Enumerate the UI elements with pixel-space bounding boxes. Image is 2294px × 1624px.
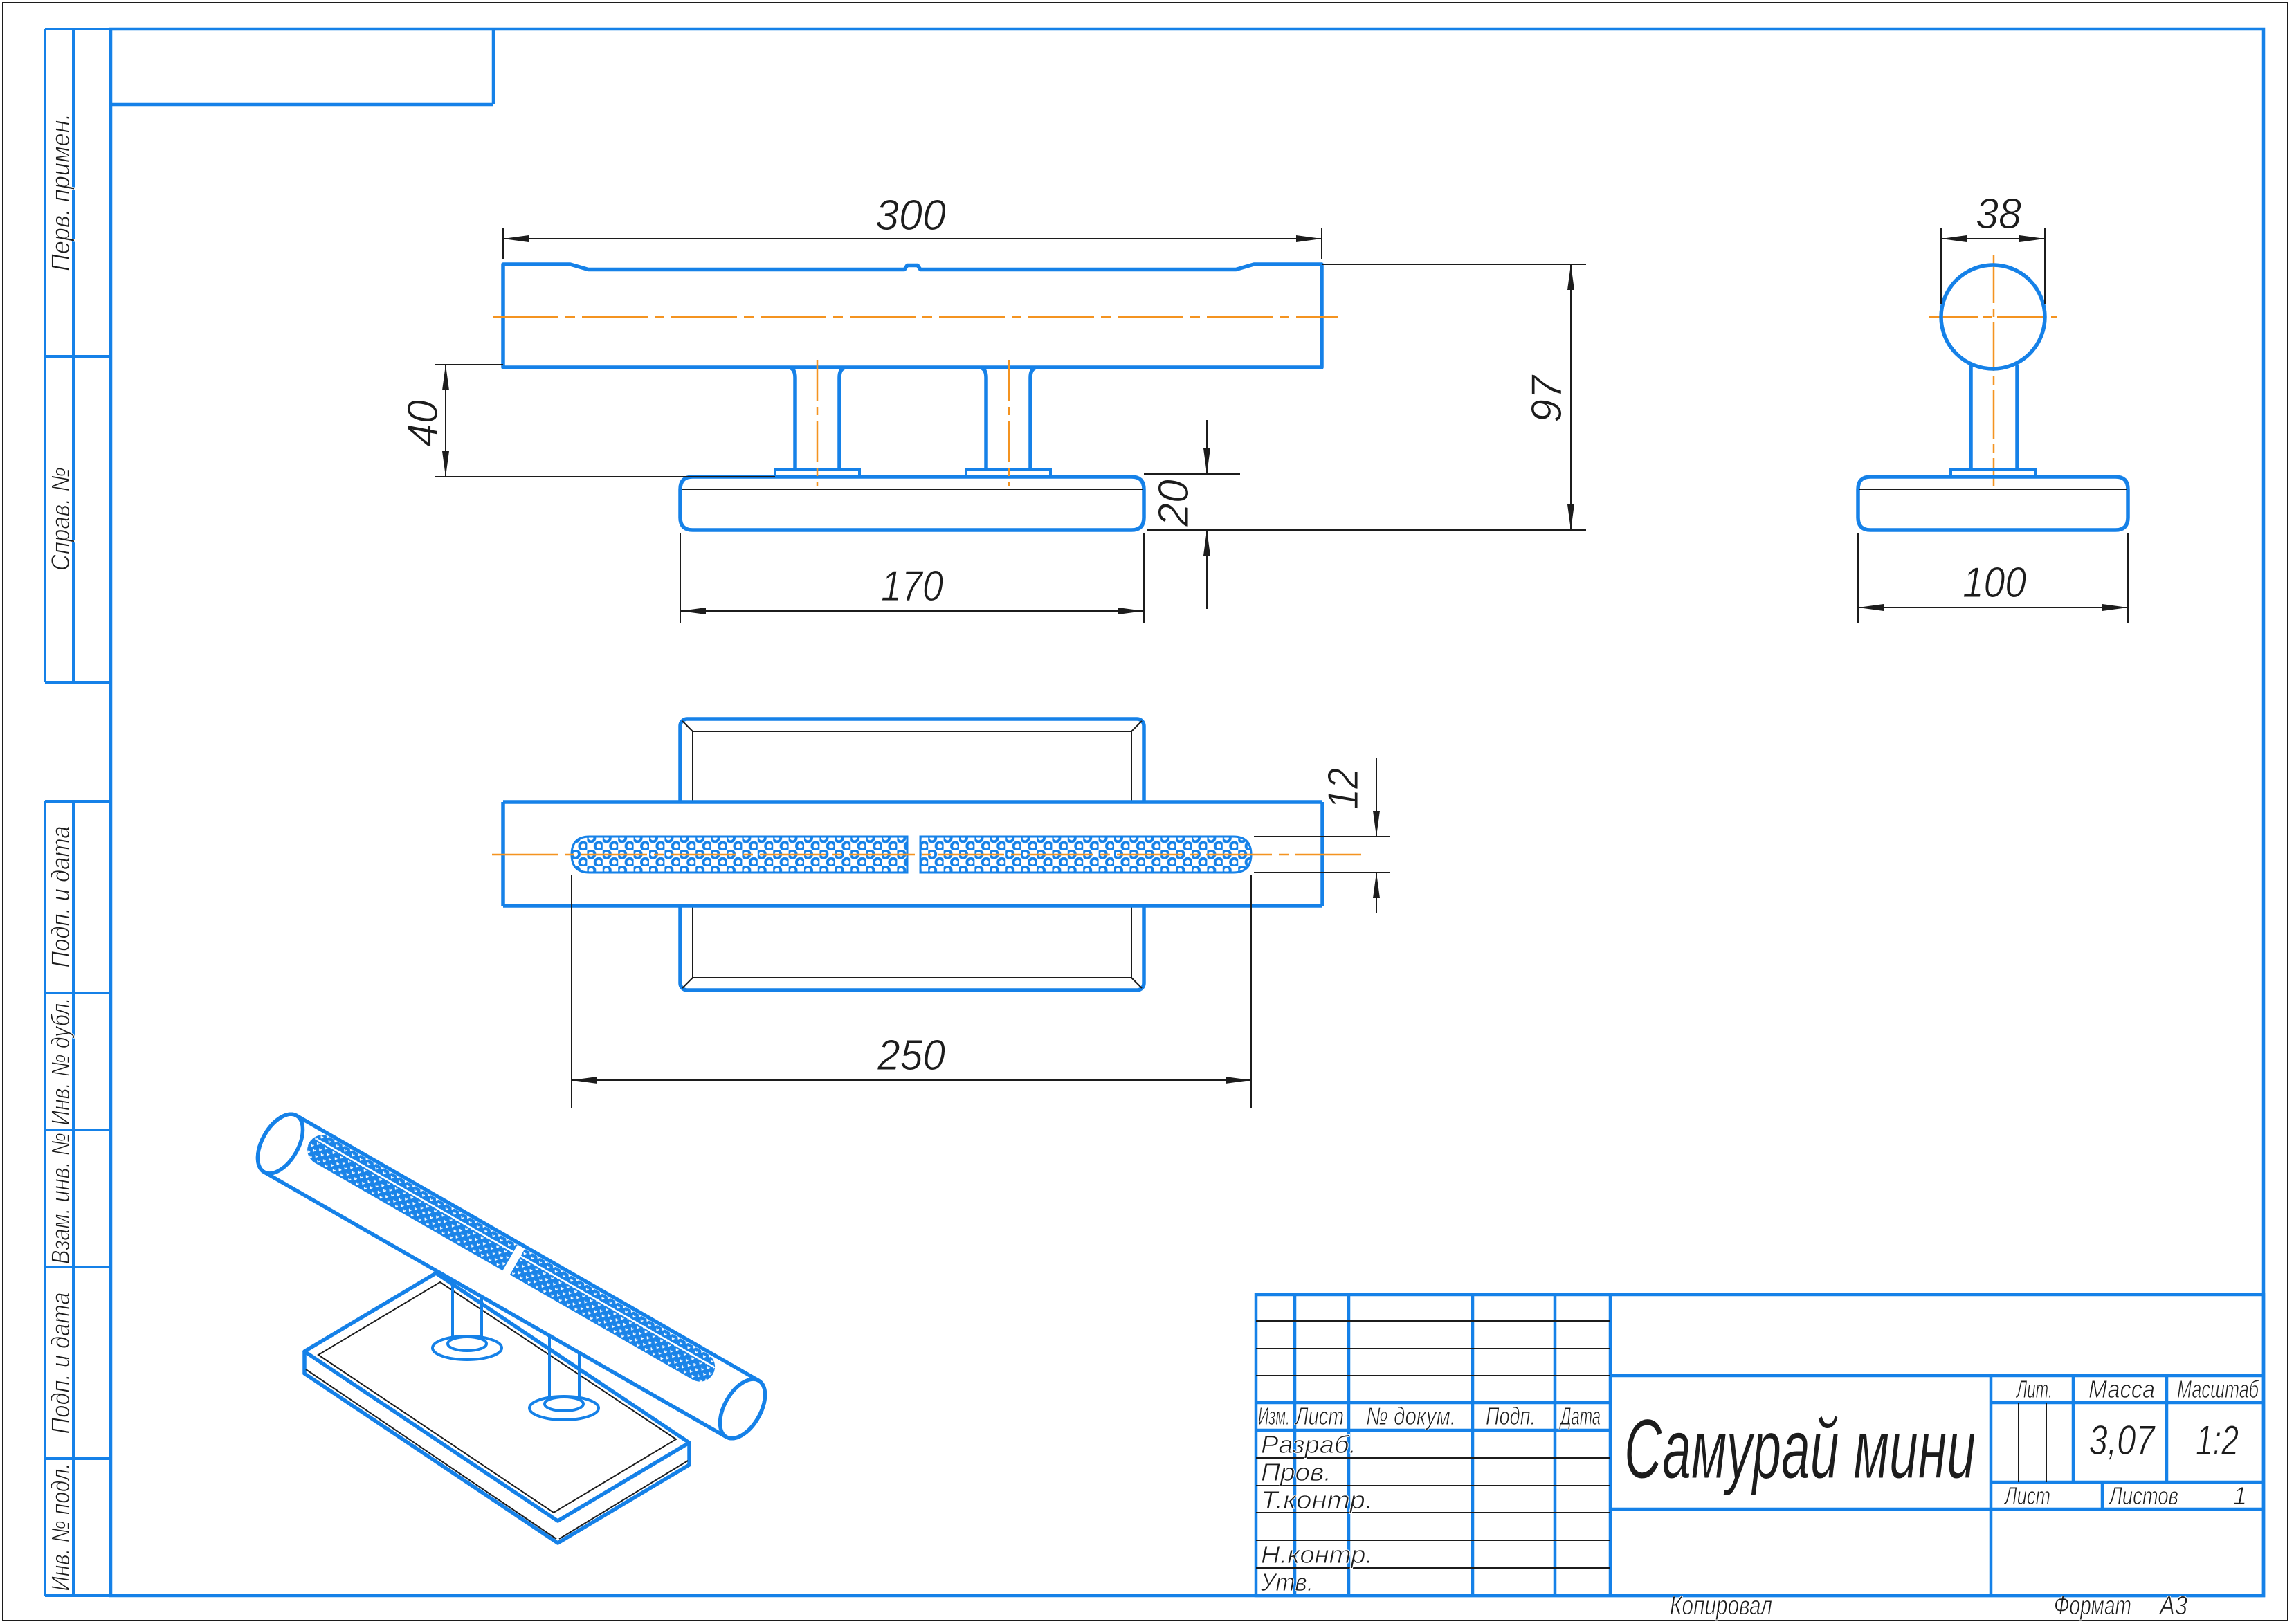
svg-text:Утв.: Утв. (1260, 1568, 1313, 1596)
svg-text:№ докум.: № докум. (1366, 1402, 1456, 1430)
svg-text:Формат: Формат (2054, 1591, 2131, 1621)
svg-text:40: 40 (399, 400, 447, 447)
svg-text:Лист: Лист (1294, 1402, 1344, 1430)
svg-text:Листов: Листов (2108, 1481, 2178, 1510)
svg-text:97: 97 (1523, 374, 1571, 423)
svg-text:1: 1 (2233, 1481, 2247, 1510)
svg-text:Пров.: Пров. (1261, 1458, 1331, 1486)
svg-text:Изм.: Изм. (1258, 1402, 1290, 1430)
svg-text:Подп. и дата: Подп. и дата (46, 826, 75, 968)
svg-text:170: 170 (881, 563, 943, 610)
svg-text:Самурай мини: Самурай мини (1624, 1402, 1976, 1496)
svg-text:12: 12 (1320, 768, 1367, 810)
svg-text:20: 20 (1150, 480, 1198, 527)
svg-text:Копировал: Копировал (1670, 1591, 1772, 1621)
svg-text:Масса: Масса (2088, 1375, 2155, 1403)
svg-text:Подп. и дата: Подп. и дата (46, 1293, 75, 1434)
svg-text:Дата: Дата (1559, 1402, 1601, 1430)
svg-text:Подп.: Подп. (1486, 1402, 1536, 1430)
svg-text:Лит.: Лит. (2016, 1375, 2052, 1403)
svg-text:Н.контр.: Н.контр. (1261, 1540, 1373, 1569)
svg-text:Масштаб: Масштаб (2177, 1375, 2259, 1403)
svg-text:38: 38 (1976, 190, 2021, 238)
svg-text:Инв. № подл.: Инв. № подл. (46, 1463, 75, 1591)
svg-text:250: 250 (877, 1032, 945, 1079)
svg-text:3,07: 3,07 (2089, 1417, 2156, 1463)
svg-text:Взам. инв. №: Взам. инв. № (46, 1133, 75, 1264)
svg-text:Инв. № дубл.: Инв. № дубл. (46, 998, 75, 1126)
svg-text:300: 300 (875, 192, 946, 239)
svg-text:Разраб.: Разраб. (1261, 1430, 1356, 1459)
svg-text:А3: А3 (2158, 1591, 2187, 1621)
svg-text:1:2: 1:2 (2196, 1417, 2239, 1463)
svg-text:100: 100 (1963, 559, 2026, 607)
svg-text:Справ. №: Справ. № (46, 467, 75, 571)
svg-text:Перв. примен.: Перв. примен. (46, 113, 75, 271)
svg-text:Т.контр.: Т.контр. (1261, 1486, 1373, 1514)
svg-text:Лист: Лист (2004, 1481, 2050, 1510)
